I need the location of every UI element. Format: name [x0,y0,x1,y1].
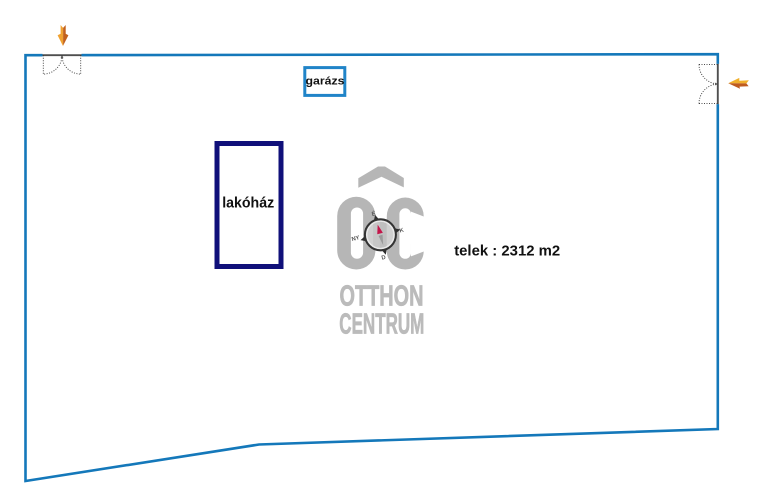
svg-text:telek : 2312 m2: telek : 2312 m2 [454,243,560,260]
svg-text:garázs: garázs [306,75,345,87]
svg-text:lakóház: lakóház [222,196,274,212]
svg-text:CENTRUM: CENTRUM [339,309,424,341]
